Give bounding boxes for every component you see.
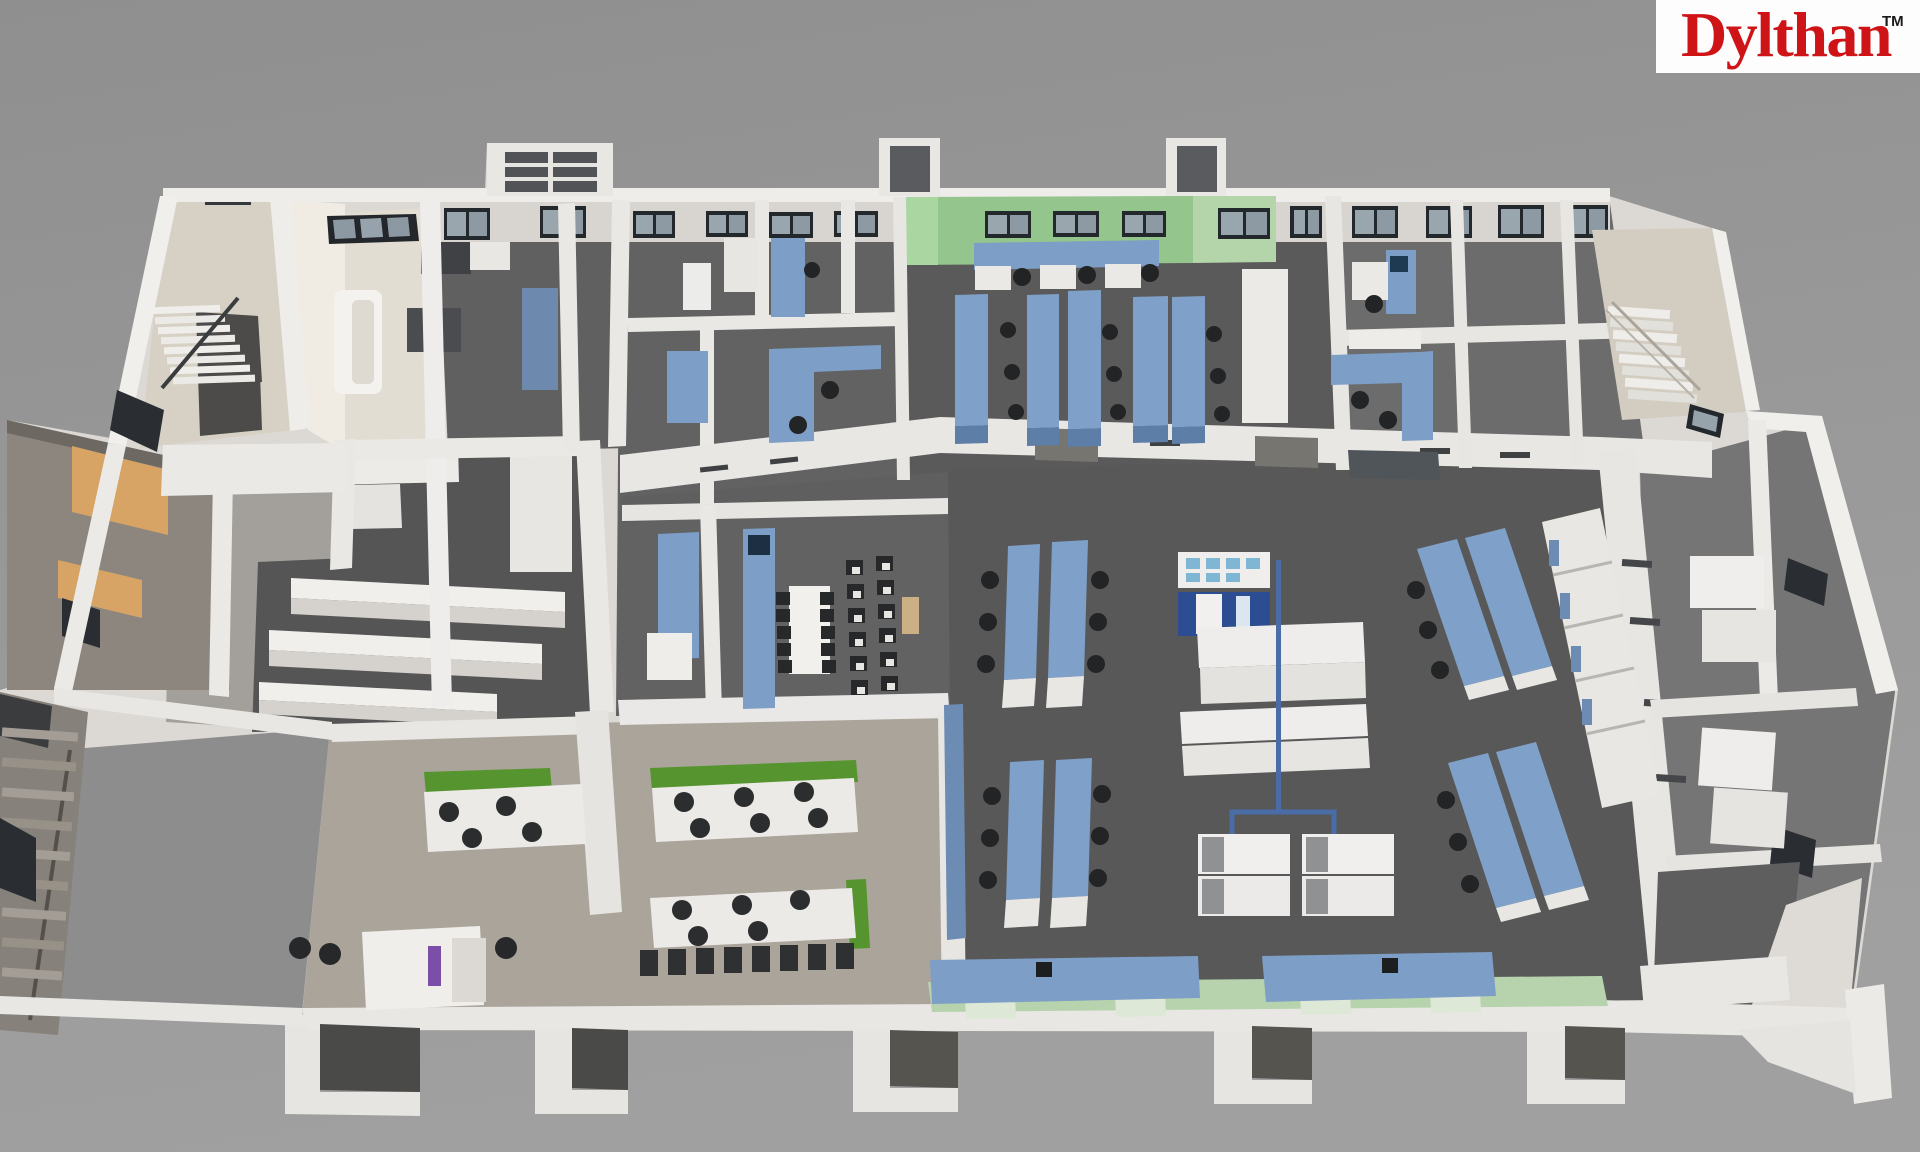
svg-text:TM: TM: [1882, 13, 1904, 30]
svg-text:Dylthan: Dylthan: [1681, 0, 1892, 70]
